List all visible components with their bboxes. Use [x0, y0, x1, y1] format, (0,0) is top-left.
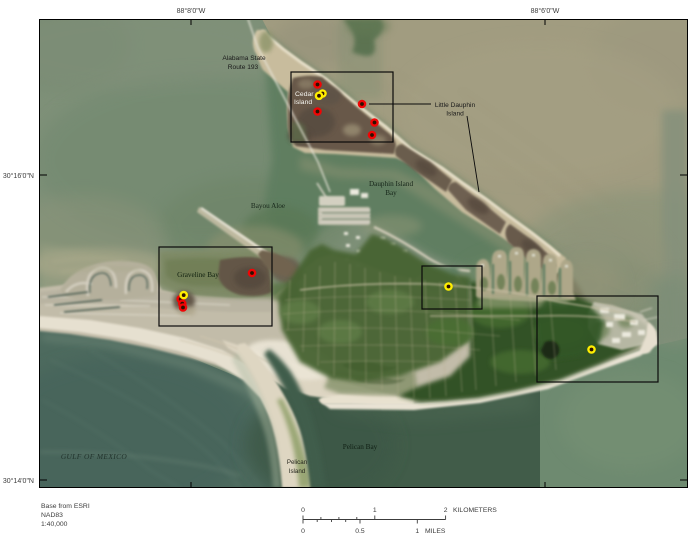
svg-text:Bayou Aloe: Bayou Aloe: [251, 202, 285, 210]
svg-text:Island: Island: [294, 99, 312, 106]
svg-text:Little Dauphin: Little Dauphin: [435, 102, 476, 109]
svg-text:88°6'0"W: 88°6'0"W: [531, 7, 560, 15]
svg-text:NAD83: NAD83: [41, 512, 63, 519]
svg-text:0: 0: [301, 528, 305, 535]
svg-text:Cedar: Cedar: [295, 91, 314, 98]
svg-text:30°16'0"N: 30°16'0"N: [3, 172, 34, 180]
svg-text:88°8'0"W: 88°8'0"W: [177, 7, 206, 15]
svg-text:MILES: MILES: [425, 528, 446, 535]
svg-text:Base from ESRI: Base from ESRI: [41, 503, 90, 510]
svg-text:2: 2: [444, 507, 448, 514]
svg-text:Pelican Bay: Pelican Bay: [343, 443, 378, 451]
svg-text:Dauphin Island: Dauphin Island: [369, 180, 414, 188]
svg-text:30°14'0"N: 30°14'0"N: [3, 477, 34, 485]
svg-text:Graveline Bay: Graveline Bay: [177, 271, 219, 279]
svg-text:Route 193: Route 193: [228, 64, 259, 71]
svg-text:1: 1: [373, 507, 377, 514]
svg-text:0: 0: [301, 507, 305, 514]
svg-text:Pelican: Pelican: [287, 459, 308, 466]
svg-text:Island: Island: [289, 468, 306, 475]
svg-text:Island: Island: [446, 111, 464, 118]
svg-text:0.5: 0.5: [355, 528, 365, 535]
svg-text:Bay: Bay: [385, 189, 397, 197]
svg-text:1: 1: [415, 528, 419, 535]
svg-text:Alabama State: Alabama State: [222, 55, 266, 62]
svg-text:KILOMETERS: KILOMETERS: [453, 507, 497, 514]
svg-text:GULF OF MEXICO: GULF OF MEXICO: [61, 452, 128, 461]
svg-text:1:40,000: 1:40,000: [41, 521, 68, 528]
